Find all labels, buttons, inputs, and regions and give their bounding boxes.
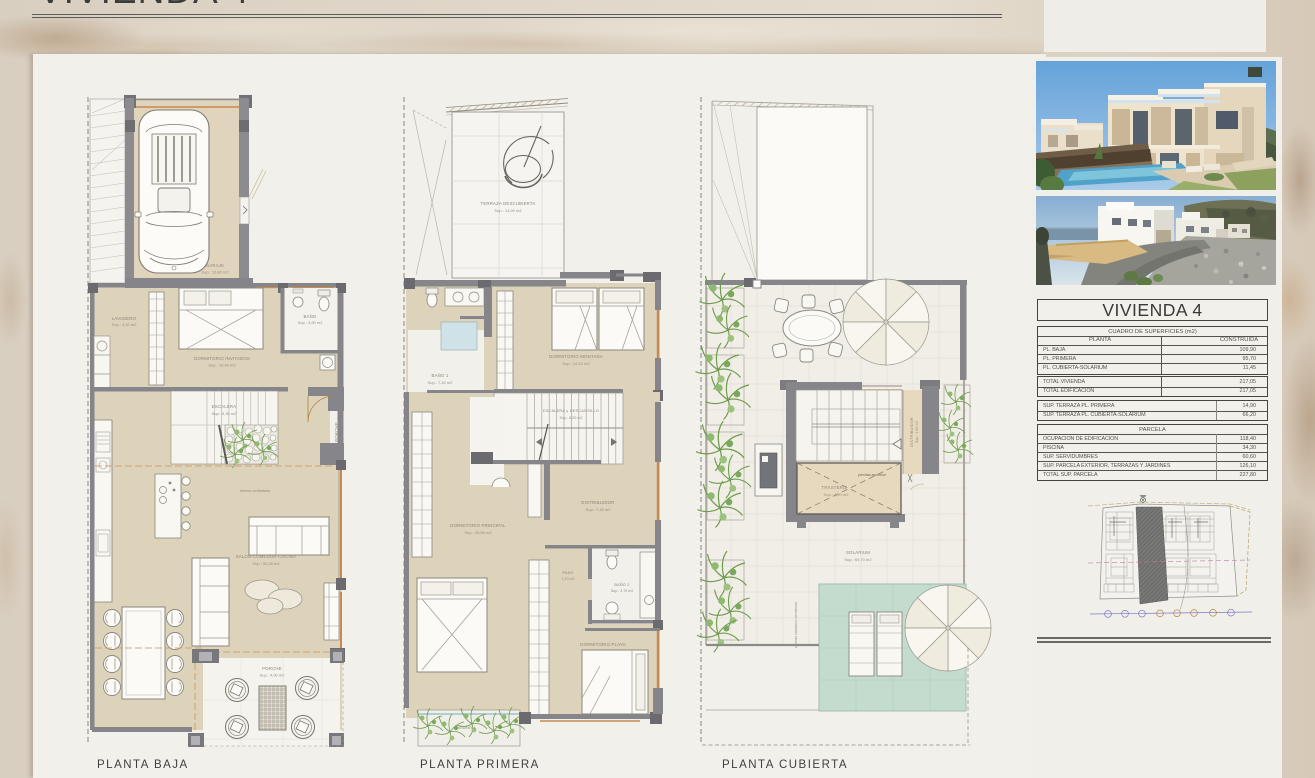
svg-text:PORCHE: PORCHE: [262, 666, 282, 671]
svg-text:1,70 m2: 1,70 m2: [562, 577, 575, 581]
svg-text:prevista instalación aerotermi: prevista instalación aerotermia: [794, 602, 798, 648]
svg-text:PLANTA BAJA: PLANTA BAJA: [97, 759, 189, 771]
svg-text:Sup.: 3,70 m2: Sup.: 3,70 m2: [611, 589, 633, 593]
svg-text:DORMITORIO PLAYA: DORMITORIO PLAYA: [580, 642, 625, 647]
svg-text:Sup.: 69,70 m2: Sup.: 69,70 m2: [844, 557, 872, 562]
svg-text:DORMITORIO PRINCIPAL: DORMITORIO PRINCIPAL: [450, 523, 506, 528]
svg-text:prevista ascensor: prevista ascensor: [858, 473, 887, 477]
svg-text:Sup.: 3,90 m2: Sup.: 3,90 m2: [298, 320, 324, 325]
svg-text:JARDINERA: JARDINERA: [456, 726, 476, 730]
svg-text:BAÑO 2: BAÑO 2: [614, 582, 629, 587]
svg-text:Sup.: 3,60 m2: Sup.: 3,60 m2: [915, 421, 919, 443]
svg-text:BAÑO 1: BAÑO 1: [432, 373, 449, 378]
svg-text:Sup.: 4,20 m2: Sup.: 4,20 m2: [824, 492, 850, 497]
svg-text:PASO: PASO: [562, 571, 573, 575]
svg-text:DORMITORIO INVITADOS: DORMITORIO INVITADOS: [194, 356, 250, 361]
svg-text:TRASTERO: TRASTERO: [822, 485, 847, 490]
svg-text:DORMITORIO MONTAÑA: DORMITORIO MONTAÑA: [549, 354, 603, 359]
svg-text:Sup.: 7,45 m2: Sup.: 7,45 m2: [586, 507, 612, 512]
svg-text:Sup.: 14,90 m2: Sup.: 14,90 m2: [494, 208, 522, 213]
svg-text:Sup.: 5,30 m2: Sup.: 5,30 m2: [212, 411, 238, 416]
svg-text:SALON-COMEDOR-COCINA: SALON-COMEDOR-COCINA: [236, 554, 297, 559]
svg-text:Sup.: 4,90 m2: Sup.: 4,90 m2: [260, 673, 286, 678]
svg-text:Sup.: 7,20 m2: Sup.: 7,20 m2: [428, 380, 454, 385]
svg-text:PLANTA PRIMERA: PLANTA PRIMERA: [420, 759, 540, 771]
svg-text:LAVADERO: LAVADERO: [112, 316, 137, 321]
svg-text:BAÑO: BAÑO: [304, 314, 317, 319]
svg-text:Sup.: 26,95 m2: Sup.: 26,95 m2: [464, 530, 492, 535]
svg-text:SOLARIUM: SOLARIUM: [846, 550, 870, 555]
svg-text:Sup.: 8,20 m2: Sup.: 8,20 m2: [560, 416, 583, 420]
svg-text:Sup.: 4,20 m2: Sup.: 4,20 m2: [112, 322, 138, 327]
svg-text:Sup.: 10,40 m2: Sup.: 10,40 m2: [208, 363, 236, 368]
svg-text:ESCALERA: ESCALERA: [212, 404, 237, 409]
svg-text:Sup.: 14,10 m2: Sup.: 14,10 m2: [562, 361, 590, 366]
svg-text:GARAJE: GARAJE: [206, 263, 224, 268]
svg-text:DISTRIBUIDOR: DISTRIBUIDOR: [581, 500, 614, 505]
svg-text:PLANTA CUBIERTA: PLANTA CUBIERTA: [722, 759, 848, 771]
svg-text:Sup.: 52,35 m2: Sup.: 52,35 m2: [252, 561, 280, 566]
svg-text:ESCALERA y DESCANSILLO: ESCALERA y DESCANSILLO: [543, 408, 599, 413]
svg-text:TERRAZA DESCUBIERTA: TERRAZA DESCUBIERTA: [481, 201, 536, 206]
svg-text:DISTRIBUIDOR: DISTRIBUIDOR: [910, 417, 914, 447]
svg-text:división acristalada: división acristalada: [240, 489, 270, 493]
svg-text:Sup.: 16,80 m2: Sup.: 16,80 m2: [201, 270, 229, 275]
